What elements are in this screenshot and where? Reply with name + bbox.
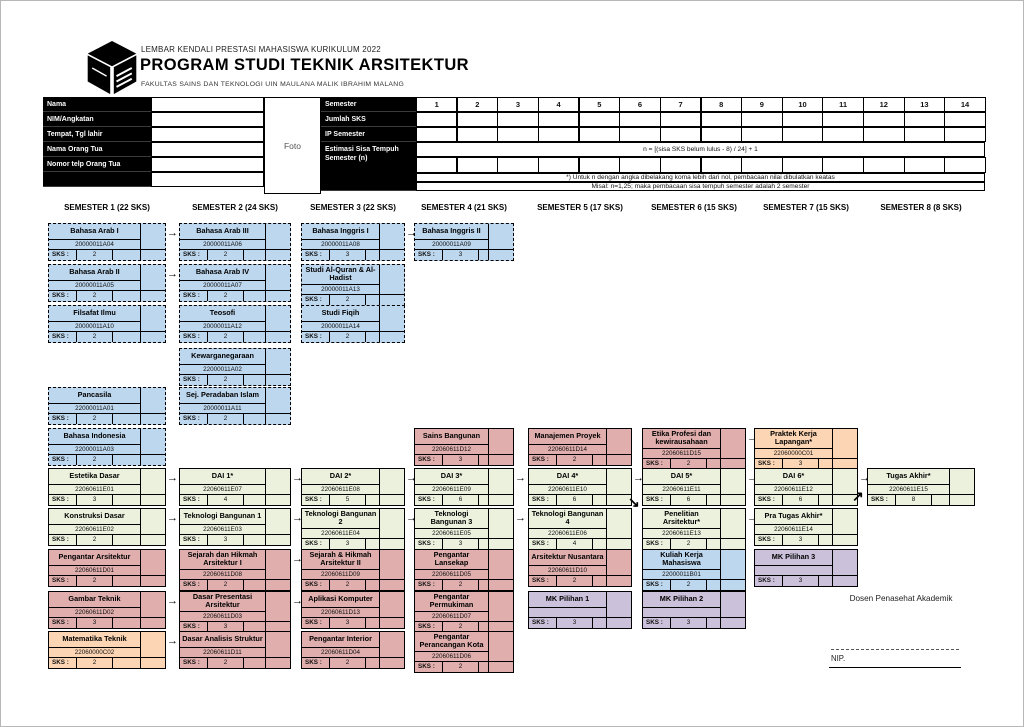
grade-cell xyxy=(488,469,513,505)
course-card: Pengantar Permukiman22060611D07SKS :2 xyxy=(414,591,514,633)
grade-cell xyxy=(379,224,404,260)
course-sks-row: SKS :2 xyxy=(302,580,379,590)
course-card: Kuliah Kerja Mahasiswa22000011B01SKS :2 xyxy=(642,549,746,591)
course-code: 22060611D01 xyxy=(49,565,140,576)
course-sks-row: SKS :5 xyxy=(302,495,379,505)
course-code: 22060611E09 xyxy=(415,484,488,495)
course-code xyxy=(755,565,832,576)
semester-number-cell: 3 xyxy=(497,97,538,112)
course-card: Teknologi Bangunan 322060611E05SKS :3 xyxy=(414,508,514,550)
course-code: 22060611E05 xyxy=(415,528,488,539)
sks-value: 8 xyxy=(896,495,932,505)
sks-value: 4 xyxy=(557,539,593,549)
grade-cell xyxy=(379,469,404,505)
sks-label: SKS : xyxy=(180,250,208,260)
estimasi-cell xyxy=(944,157,985,173)
course-sks-row: SKS :2 xyxy=(180,250,265,260)
flow-arrow-icon: → xyxy=(167,228,178,239)
sks-value: 2 xyxy=(77,414,113,424)
course-card: Bahasa Arab I20000011A04SKS :2 xyxy=(48,223,166,261)
course-sks-row: SKS :2 xyxy=(49,455,140,465)
course-sks-row: SKS :2 xyxy=(529,455,606,465)
course-sks-row: SKS :2 xyxy=(180,658,265,668)
grade-cell xyxy=(949,469,974,505)
course-title: Bahasa Inggris II xyxy=(415,224,488,239)
course-code: 22060611E12 xyxy=(755,484,832,495)
course-sks-row: SKS :3 xyxy=(755,576,832,586)
grade-cell xyxy=(265,265,290,301)
course-title: MK Pilihan 2 xyxy=(643,592,720,607)
course-code: 22000011B01 xyxy=(643,569,720,580)
grade-cell xyxy=(488,224,513,260)
course-code: 22000011A02 xyxy=(180,364,265,375)
sks-label: SKS : xyxy=(643,539,671,549)
sks-value: 2 xyxy=(77,291,113,301)
course-title: MK Pilihan 1 xyxy=(529,592,606,607)
course-code xyxy=(529,607,606,618)
course-sks-row: SKS :2 xyxy=(49,291,140,301)
note-text: Misal: n=1,25; maka pembacaan sisa tempu… xyxy=(416,182,985,191)
sks-label: SKS : xyxy=(180,414,208,424)
course-title: Konstruksi Dasar xyxy=(49,509,140,524)
sks-value: 3 xyxy=(330,250,366,260)
sks-value: 2 xyxy=(77,250,113,260)
form-field-value xyxy=(151,172,264,187)
course-title: Etika Profesi dan kewirausahaan xyxy=(643,429,720,448)
course-code: 22060611D04 xyxy=(302,647,379,658)
semester-column-header: SEMESTER 8 (8 SKS) xyxy=(851,203,991,212)
grade-cell xyxy=(140,224,165,260)
flow-arrow-icon: → xyxy=(167,636,178,647)
sks-label: SKS : xyxy=(49,250,77,260)
grade-cell xyxy=(606,429,631,465)
sks-label: SKS : xyxy=(180,580,208,590)
course-card: Studi Al-Quran & Al-Hadist20000011A13SKS… xyxy=(301,264,405,306)
estimasi-cell xyxy=(497,157,538,173)
sks-value: 3 xyxy=(783,576,819,586)
course-code: 22060611E02 xyxy=(49,524,140,535)
grade-cell xyxy=(832,550,857,586)
course-card: MK Pilihan 2SKS :3 xyxy=(642,591,746,629)
sks-value: 2 xyxy=(208,291,244,301)
grade-cell xyxy=(265,550,290,590)
sks-label: SKS : xyxy=(529,618,557,628)
flow-arrow-icon: → xyxy=(515,513,526,524)
ip-semester-cell xyxy=(701,127,742,142)
form-field-label xyxy=(43,172,151,187)
course-card: DAI 5*22060611E11SKS :6 xyxy=(642,468,746,506)
flow-arrow-icon: → xyxy=(167,596,178,607)
course-card: Pengantar Lansekap22060611D05SKS :2 xyxy=(414,549,514,591)
jumlah-sks-cell xyxy=(579,112,620,127)
sks-label: SKS : xyxy=(643,618,671,628)
sks-label: SKS : xyxy=(529,539,557,549)
sks-value: 5 xyxy=(330,495,366,505)
course-code: 22060611E01 xyxy=(49,484,140,495)
course-title: Teknologi Bangunan 3 xyxy=(415,509,488,528)
course-sks-row: SKS :2 xyxy=(302,658,379,668)
sks-value: 3 xyxy=(443,455,479,465)
grade-cell xyxy=(379,306,404,342)
grade-cell xyxy=(832,429,857,469)
course-sks-row: SKS :2 xyxy=(180,332,265,342)
sks-label: SKS : xyxy=(643,495,671,505)
program-logo-icon xyxy=(85,39,139,97)
course-sks-row: SKS :3 xyxy=(529,618,606,628)
course-title: Teknologi Bangunan 4 xyxy=(529,509,606,528)
course-card: Sejarah dan Hikmah Arsitektur I22060611D… xyxy=(179,549,291,591)
sks-value: 3 xyxy=(671,618,707,628)
course-card: Bahasa Arab III20000011A06SKS :2 xyxy=(179,223,291,261)
ip-semester-cell xyxy=(822,127,863,142)
course-sks-row: SKS :3 xyxy=(415,455,488,465)
course-sks-row: SKS :2 xyxy=(415,662,488,672)
course-title: DAI 5* xyxy=(643,469,720,484)
signature-line xyxy=(831,649,959,650)
grade-cell xyxy=(720,550,745,590)
course-sks-row: SKS :3 xyxy=(49,495,140,505)
course-card: Etika Profesi dan kewirausahaan22060611D… xyxy=(642,428,746,470)
course-title: MK Pilihan 3 xyxy=(755,550,832,565)
sks-label: SKS : xyxy=(49,618,77,628)
sks-label: SKS : xyxy=(180,535,208,545)
course-card: Pengantar Arsitektur22060611D01SKS :2 xyxy=(48,549,166,587)
semester-column-header: SEMESTER 1 (22 SKS) xyxy=(37,203,177,212)
sks-label: SKS : xyxy=(415,495,443,505)
course-card: Studi Fiqih20000011A14SKS :2 xyxy=(301,305,405,343)
course-code: 22060611D10 xyxy=(529,565,606,576)
course-sks-row: SKS :2 xyxy=(302,295,379,305)
course-sks-row: SKS :6 xyxy=(643,495,720,505)
grade-cell xyxy=(606,509,631,549)
course-title: Pengantar Perancangan Kota xyxy=(415,632,488,651)
course-title: Bahasa Arab III xyxy=(180,224,265,239)
grade-cell xyxy=(488,550,513,590)
sks-label: SKS : xyxy=(180,495,208,505)
grade-cell xyxy=(488,592,513,632)
ip-semester-cell xyxy=(782,127,823,142)
course-card: Pengantar Interior22060611D04SKS :2 xyxy=(301,631,405,669)
course-title: Bahasa Arab I xyxy=(49,224,140,239)
curriculum-control-sheet: LEMBAR KENDALI PRESTASI MAHASISWA KURIKU… xyxy=(0,0,1024,727)
estimasi-cell xyxy=(701,157,742,173)
course-card: MK Pilihan 1SKS :3 xyxy=(528,591,632,629)
course-card: Bahasa Indonesia22000011A03SKS :2 xyxy=(48,428,166,466)
semester-number-cell: 9 xyxy=(741,97,782,112)
nip-label: NIP. xyxy=(831,654,845,663)
jumlah-sks-cell xyxy=(701,112,742,127)
estimasi-cell xyxy=(619,157,660,173)
course-card: Pengantar Perancangan Kota22060611D06SKS… xyxy=(414,631,514,673)
course-sks-row: SKS :2 xyxy=(415,580,488,590)
course-code: 22060611D05 xyxy=(415,569,488,580)
flow-arrow-icon: → xyxy=(515,473,526,484)
course-card: Bahasa Inggris I20000011A08SKS :3 xyxy=(301,223,405,261)
form-field-value xyxy=(151,142,264,157)
course-title: Pengantar Lansekap xyxy=(415,550,488,569)
course-title: Teknologi Bangunan 2 xyxy=(302,509,379,528)
form-field-value xyxy=(151,157,264,172)
course-title: Bahasa Arab II xyxy=(49,265,140,280)
semester-number-cell: 7 xyxy=(660,97,701,112)
sks-label: SKS : xyxy=(49,414,77,424)
course-title: Arsitektur Nusantara xyxy=(529,550,606,565)
course-code: 22060611D07 xyxy=(415,611,488,622)
course-title: Studi Al-Quran & Al-Hadist xyxy=(302,265,379,284)
course-sks-row: SKS :6 xyxy=(415,495,488,505)
course-title: DAI 6* xyxy=(755,469,832,484)
sks-label: SKS : xyxy=(180,332,208,342)
course-code: 22000011A03 xyxy=(49,444,140,455)
course-title: Pengantar Interior xyxy=(302,632,379,647)
course-title: Penelitian Arsitektur* xyxy=(643,509,720,528)
flow-arrow-icon: → xyxy=(167,513,178,524)
sks-label: SKS : xyxy=(415,580,443,590)
course-sks-row: SKS :2 xyxy=(49,250,140,260)
course-sks-row: SKS :3 xyxy=(415,250,488,260)
course-code: 20000011A13 xyxy=(302,284,379,295)
course-sks-row: SKS :3 xyxy=(643,618,720,628)
sks-value: 2 xyxy=(77,332,113,342)
sks-label: SKS : xyxy=(49,658,77,668)
sks-label: SKS : xyxy=(49,576,77,586)
course-code: 22060611E06 xyxy=(529,528,606,539)
sks-value: 2 xyxy=(208,414,244,424)
course-code: 22060611D13 xyxy=(302,607,379,618)
course-title: Kuliah Kerja Mahasiswa xyxy=(643,550,720,569)
estimasi-cell xyxy=(782,157,823,173)
course-code: 22060611E08 xyxy=(302,484,379,495)
course-code: 20000011A07 xyxy=(180,280,265,291)
grade-cell xyxy=(140,550,165,586)
flow-arrow-icon: → xyxy=(167,269,178,280)
grade-cell xyxy=(832,509,857,545)
jumlah-sks-cell xyxy=(619,112,660,127)
course-code: 20000011A05 xyxy=(49,280,140,291)
course-code: 22060000C02 xyxy=(49,647,140,658)
grade-cell xyxy=(488,509,513,549)
course-code: 22060611E03 xyxy=(180,524,265,535)
course-title: Bahasa Indonesia xyxy=(49,429,140,444)
course-sks-row: SKS :3 xyxy=(302,539,379,549)
grade-cell xyxy=(140,388,165,424)
course-code: 20000011A09 xyxy=(415,239,488,250)
course-title: Teknologi Bangunan 1 xyxy=(180,509,265,524)
sks-value: 2 xyxy=(208,375,244,385)
course-code: 20000011A04 xyxy=(49,239,140,250)
grade-cell xyxy=(265,632,290,668)
grade-cell xyxy=(140,632,165,668)
course-card: Teknologi Bangunan 222060611E04SKS :3 xyxy=(301,508,405,550)
sks-label: SKS : xyxy=(302,658,330,668)
sks-label: SKS : xyxy=(49,332,77,342)
sks-label: SKS : xyxy=(302,495,330,505)
course-title: DAI 2* xyxy=(302,469,379,484)
grade-cell xyxy=(140,306,165,342)
sks-value: 3 xyxy=(443,250,479,260)
course-code: 20000011A11 xyxy=(180,403,265,414)
grade-cell xyxy=(606,592,631,628)
estimasi-cell xyxy=(741,157,782,173)
sks-label: SKS : xyxy=(415,455,443,465)
course-code: 22060611D03 xyxy=(180,611,265,622)
course-title: DAI 1* xyxy=(180,469,265,484)
course-card: Arsitektur Nusantara22060611D10SKS :2 xyxy=(528,549,632,587)
sks-label: SKS : xyxy=(755,495,783,505)
course-sks-row: SKS :2 xyxy=(180,375,265,385)
sks-value: 2 xyxy=(671,580,707,590)
sks-value: 3 xyxy=(443,539,479,549)
course-sks-row: SKS :2 xyxy=(180,414,265,424)
course-card: Pancasila22000011A01SKS :2 xyxy=(48,387,166,425)
sks-value: 2 xyxy=(671,539,707,549)
course-card: Manajemen Proyek22060611D14SKS :2 xyxy=(528,428,632,466)
course-title: Matematika Teknik xyxy=(49,632,140,647)
grade-cell xyxy=(140,429,165,465)
sks-value: 2 xyxy=(208,332,244,342)
sks-label: SKS : xyxy=(415,539,443,549)
jumlah-sks-cell xyxy=(457,112,498,127)
summary-row-label: Jumlah SKS xyxy=(321,112,416,127)
course-title: Pancasila xyxy=(49,388,140,403)
course-code: 20000011A12 xyxy=(180,321,265,332)
sks-value: 2 xyxy=(208,580,244,590)
semester-number-cell: 10 xyxy=(782,97,823,112)
course-card: Sains Bangunan22060611D12SKS :3 xyxy=(414,428,514,466)
sks-value: 3 xyxy=(557,618,593,628)
sks-value: 2 xyxy=(208,658,244,668)
course-code: 22060000C01 xyxy=(755,448,832,459)
flow-arrow-icon: ↘ xyxy=(628,495,640,509)
sks-value: 2 xyxy=(330,658,366,668)
course-title: Tugas Akhir* xyxy=(868,469,949,484)
course-title: DAI 4* xyxy=(529,469,606,484)
course-code: 22060611E10 xyxy=(529,484,606,495)
sks-value: 3 xyxy=(77,618,113,628)
grade-cell xyxy=(379,632,404,668)
sks-value: 3 xyxy=(330,618,366,628)
course-code: 22060611E15 xyxy=(868,484,949,495)
course-card: Bahasa Inggris II20000011A09SKS :3 xyxy=(414,223,514,261)
course-card: Dasar Presentasi Arsitektur22060611D03SK… xyxy=(179,591,291,633)
course-card: Penelitian Arsitektur*22060611E13SKS :2 xyxy=(642,508,746,550)
grade-cell xyxy=(488,632,513,672)
sks-value: 2 xyxy=(557,576,593,586)
flow-arrow-icon: ↗ xyxy=(852,489,864,503)
sks-value: 3 xyxy=(330,539,366,549)
course-card: Teknologi Bangunan 422060611E06SKS :4 xyxy=(528,508,632,550)
sks-label: SKS : xyxy=(529,455,557,465)
course-title: Pengantar Permukiman xyxy=(415,592,488,611)
semester-number-cell: 11 xyxy=(822,97,863,112)
sks-label: SKS : xyxy=(302,539,330,549)
course-card: Konstruksi Dasar22060611E02SKS :2 xyxy=(48,508,166,546)
course-card: Matematika Teknik22060000C02SKS :2 xyxy=(48,631,166,669)
course-title: Estetika Dasar xyxy=(49,469,140,484)
course-card: Dasar Analisis Struktur22060611D11SKS :2 xyxy=(179,631,291,669)
course-code: 22060611E07 xyxy=(180,484,265,495)
course-code xyxy=(643,607,720,618)
sks-label: SKS : xyxy=(415,662,443,672)
ip-semester-cell xyxy=(457,127,498,142)
sks-value: 2 xyxy=(443,662,479,672)
sks-value: 2 xyxy=(77,455,113,465)
formula-text: n = [(sisa SKS belum lulus - 8) / 24] + … xyxy=(416,142,985,157)
sks-value: 2 xyxy=(77,576,113,586)
form-field-label: Nama xyxy=(43,97,151,112)
estimasi-cell xyxy=(538,157,579,173)
course-sks-row: SKS :4 xyxy=(529,539,606,549)
course-code: 22060611E11 xyxy=(643,484,720,495)
sks-label: SKS : xyxy=(302,580,330,590)
course-sks-row: SKS :8 xyxy=(868,495,949,505)
semester-number-cell: 2 xyxy=(457,97,498,112)
estimasi-cell xyxy=(579,157,620,173)
jumlah-sks-cell xyxy=(416,112,457,127)
grade-cell xyxy=(720,469,745,505)
jumlah-sks-cell xyxy=(944,112,985,127)
grade-cell xyxy=(720,429,745,469)
ip-semester-cell xyxy=(538,127,579,142)
course-code: 20000011A06 xyxy=(180,239,265,250)
semester-number-cell: 14 xyxy=(944,97,985,112)
semester-number-cell: 12 xyxy=(863,97,904,112)
course-code: 20000011A14 xyxy=(302,321,379,332)
sks-label: SKS : xyxy=(302,618,330,628)
sks-label: SKS : xyxy=(49,495,77,505)
faculty-subtitle: FAKULTAS SAINS DAN TEKNOLOGI UIN MAULANA… xyxy=(141,81,404,88)
course-sks-row: SKS :2 xyxy=(49,576,140,586)
sheet-subtitle: LEMBAR KENDALI PRESTASI MAHASISWA KURIKU… xyxy=(141,45,381,54)
course-card: Filsafat Ilmu20000011A10SKS :2 xyxy=(48,305,166,343)
course-sks-row: SKS :2 xyxy=(49,332,140,342)
course-code: 22060611E14 xyxy=(755,524,832,535)
course-card: Pra Tugas Akhir*22060611E14SKS :3 xyxy=(754,508,858,546)
sks-label: SKS : xyxy=(529,495,557,505)
course-title: Dasar Analisis Struktur xyxy=(180,632,265,647)
sks-label: SKS : xyxy=(180,375,208,385)
sks-value: 3 xyxy=(77,495,113,505)
sks-label: SKS : xyxy=(529,576,557,586)
course-sks-row: SKS :3 xyxy=(415,539,488,549)
estimasi-cell xyxy=(822,157,863,173)
course-code: 22060611E13 xyxy=(643,528,720,539)
course-code: 20000011A08 xyxy=(302,239,379,250)
ip-semester-cell xyxy=(660,127,701,142)
jumlah-sks-cell xyxy=(497,112,538,127)
jumlah-sks-cell xyxy=(782,112,823,127)
course-title: Dasar Presentasi Arsitektur xyxy=(180,592,265,611)
sks-value: 6 xyxy=(557,495,593,505)
ip-semester-cell xyxy=(579,127,620,142)
course-code: 22060611D02 xyxy=(49,607,140,618)
form-field-value xyxy=(151,112,264,127)
course-sks-row: SKS :2 xyxy=(643,539,720,549)
course-card: MK Pilihan 3SKS :3 xyxy=(754,549,858,587)
note-text: *) Untuk n dengan angka dibelakang koma … xyxy=(416,173,985,182)
semester-number-cell: 4 xyxy=(538,97,579,112)
course-title: DAI 3* xyxy=(415,469,488,484)
course-title: Bahasa Arab IV xyxy=(180,265,265,280)
form-field-label: Nomor telp Orang Tua xyxy=(43,157,151,172)
semester-number-cell: 6 xyxy=(619,97,660,112)
course-sks-row: SKS :6 xyxy=(529,495,606,505)
course-sks-row: SKS :3 xyxy=(302,250,379,260)
course-code: 22000011A01 xyxy=(49,403,140,414)
sks-value: 6 xyxy=(443,495,479,505)
course-sks-row: SKS :2 xyxy=(643,580,720,590)
course-code: 22060611E04 xyxy=(302,528,379,539)
